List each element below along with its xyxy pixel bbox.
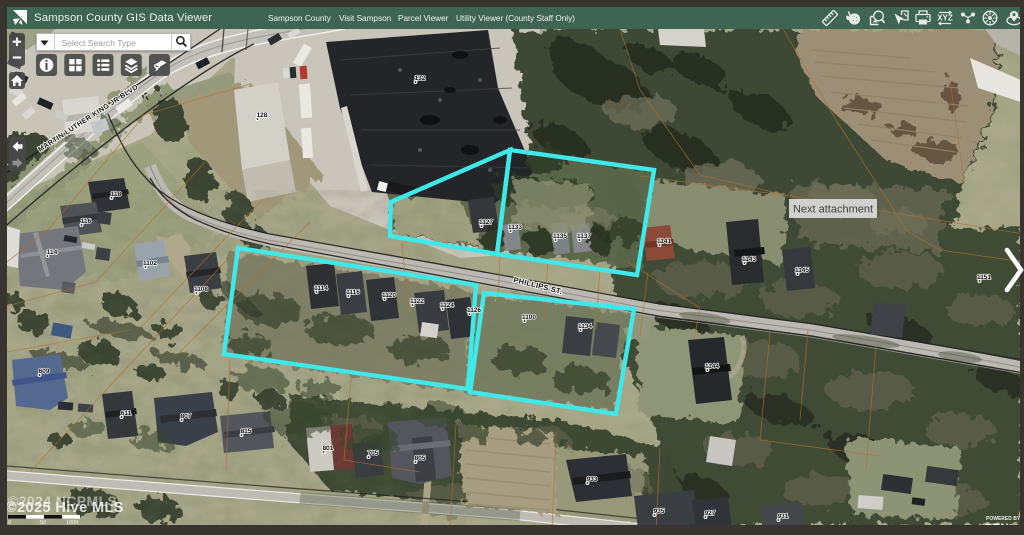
svg-text:1114: 1114 — [314, 285, 328, 292]
svg-text:1141: 1141 — [657, 238, 671, 245]
svg-text:XYZ: XYZ — [937, 14, 953, 23]
svg-text:815: 815 — [241, 428, 252, 435]
svg-text:705: 705 — [368, 450, 379, 457]
svg-text:1144: 1144 — [705, 363, 719, 370]
svg-text:1143: 1143 — [742, 256, 756, 263]
svg-text:100ft: 100ft — [66, 520, 79, 526]
svg-text:1126: 1126 — [467, 307, 481, 314]
svg-text:807: 807 — [181, 413, 192, 420]
svg-text:©2025 Hive MLS: ©2025 Hive MLS — [6, 500, 124, 516]
svg-text:931: 931 — [778, 513, 789, 520]
svg-text:1100: 1100 — [522, 314, 536, 321]
svg-text:CON: CON — [984, 522, 1009, 530]
svg-text:118: 118 — [111, 191, 122, 198]
svg-text:927: 927 — [705, 510, 716, 517]
svg-text:1127: 1127 — [479, 219, 493, 226]
svg-text:1124: 1124 — [440, 302, 454, 309]
svg-text:805: 805 — [415, 455, 426, 462]
svg-text:933: 933 — [587, 476, 598, 483]
svg-text:114: 114 — [47, 249, 58, 256]
svg-text:1108: 1108 — [194, 286, 208, 293]
svg-text:611: 611 — [121, 410, 132, 417]
svg-text:1102: 1102 — [143, 260, 157, 267]
svg-text:116: 116 — [81, 218, 92, 225]
svg-text:1133: 1133 — [508, 224, 522, 231]
svg-text:935: 935 — [654, 508, 665, 515]
svg-text:132: 132 — [415, 75, 426, 82]
svg-text:1116: 1116 — [346, 289, 360, 296]
svg-text:0: 0 — [8, 520, 11, 526]
svg-text:1137: 1137 — [577, 233, 591, 240]
svg-text:50: 50 — [40, 520, 46, 526]
svg-text:1151: 1151 — [977, 274, 991, 281]
svg-text:1134: 1134 — [578, 323, 592, 330]
svg-text:801: 801 — [323, 445, 334, 452]
svg-text:609: 609 — [39, 368, 50, 375]
svg-text:1120: 1120 — [382, 292, 396, 299]
svg-text:1145: 1145 — [795, 267, 809, 274]
svg-text:1135: 1135 — [553, 233, 567, 240]
svg-text:128: 128 — [257, 112, 268, 119]
svg-text:Next attachment: Next attachment — [793, 204, 873, 216]
svg-text:1122: 1122 — [410, 298, 424, 305]
